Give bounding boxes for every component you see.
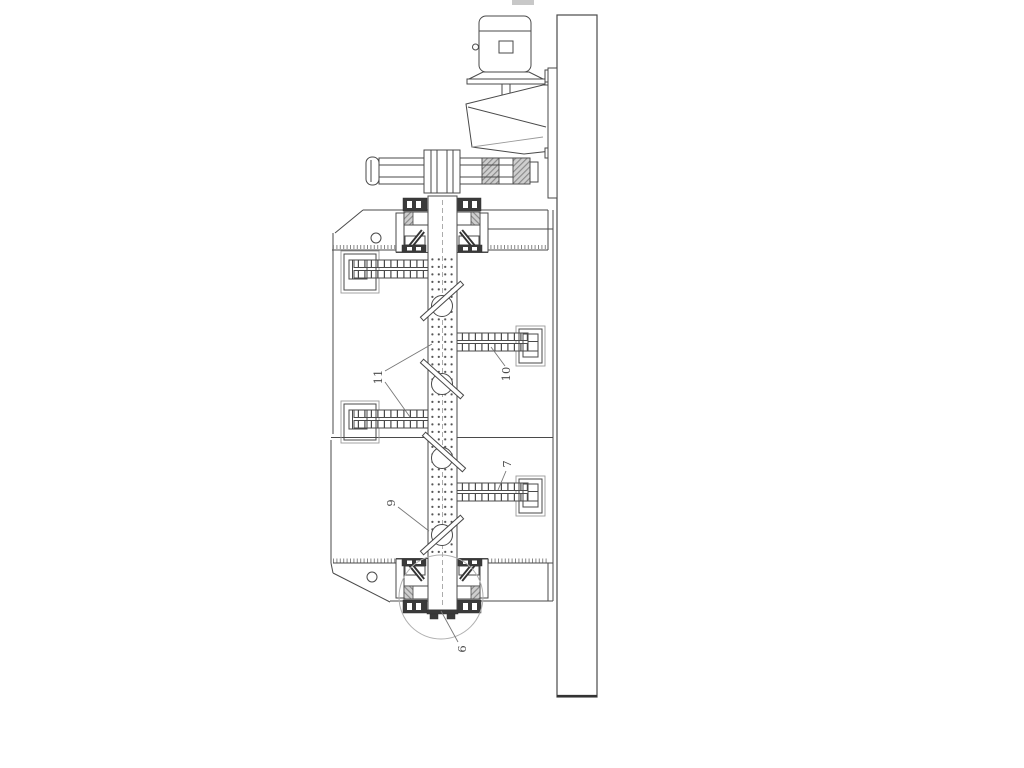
gear-reducer (466, 85, 551, 154)
motor-flange (469, 72, 543, 79)
drive-coupling (366, 150, 538, 193)
callout-6: 6 (455, 645, 469, 652)
paddle-arm-lower-left (341, 401, 428, 443)
motor-nub (473, 44, 479, 50)
coupling-left-arm (379, 158, 424, 184)
agitator-shaft (420, 196, 465, 619)
callout-9: 9 (384, 499, 398, 506)
bracket-hole-top (371, 233, 381, 243)
drawing-page: 11 10 7 9 6 (0, 0, 1024, 768)
coupling-center-block (424, 150, 460, 193)
paddle-arm-upper-left (341, 251, 428, 293)
leader-line-9 (398, 507, 429, 531)
callout-10: 10 (499, 367, 513, 382)
coupling-left-cap (366, 157, 379, 185)
callout-7: 7 (500, 460, 514, 467)
image-artifact (512, 0, 534, 5)
wall-plate (557, 15, 597, 697)
callout-11: 11 (371, 370, 385, 385)
agitator-figure: 11 10 7 9 6 (0, 0, 1024, 768)
motor-junction-box (499, 41, 513, 53)
bracket-hole-bottom (367, 572, 377, 582)
